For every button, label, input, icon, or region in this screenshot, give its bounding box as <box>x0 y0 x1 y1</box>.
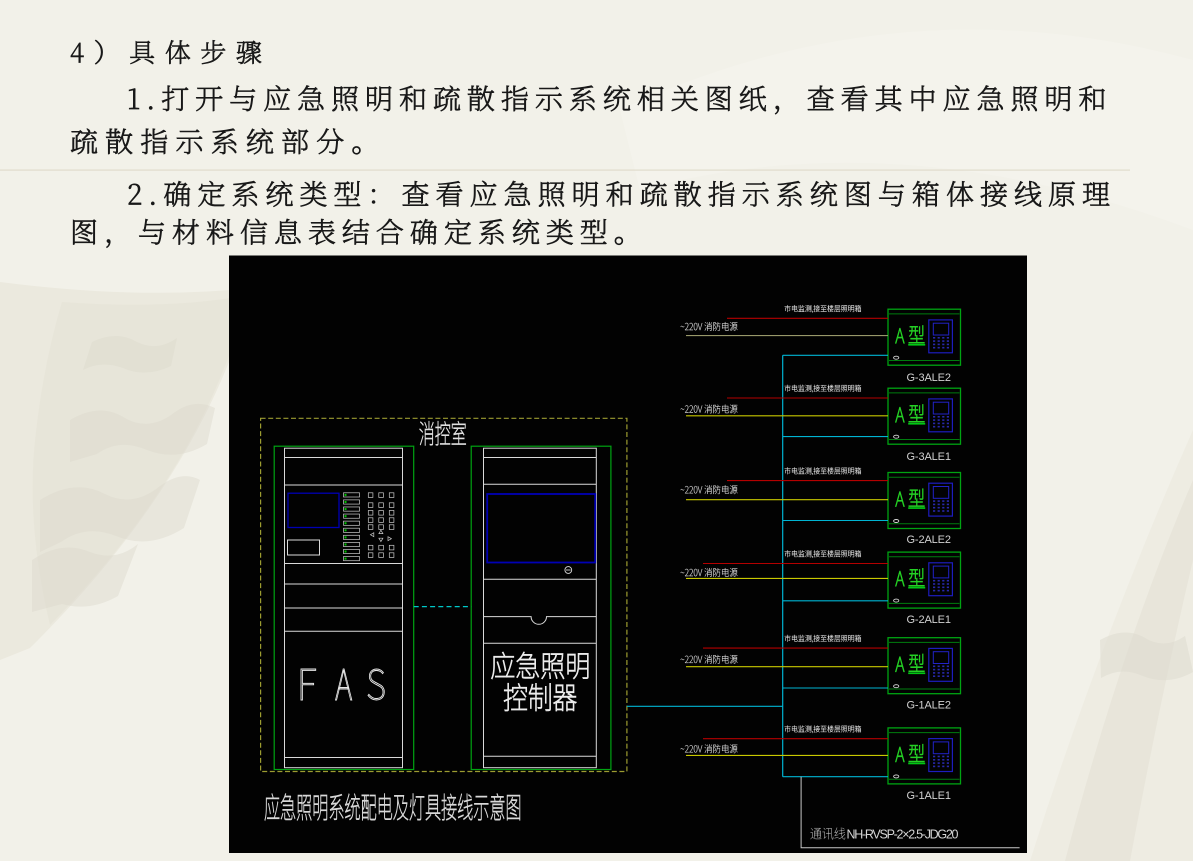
svg-text:NH-RVSP-2×2.5-JDG20: NH-RVSP-2×2.5-JDG20 <box>847 828 959 842</box>
svg-text:G-1ALE1: G-1ALE1 <box>907 790 952 802</box>
svg-text:G-1ALE2: G-1ALE2 <box>907 700 952 712</box>
svg-text:G-2ALE1: G-2ALE1 <box>907 614 952 626</box>
svg-text:G-3ALE1: G-3ALE1 <box>907 451 952 463</box>
svg-text:G-2ALE2: G-2ALE2 <box>907 534 952 546</box>
svg-text:G-3ALE2: G-3ALE2 <box>907 372 952 384</box>
